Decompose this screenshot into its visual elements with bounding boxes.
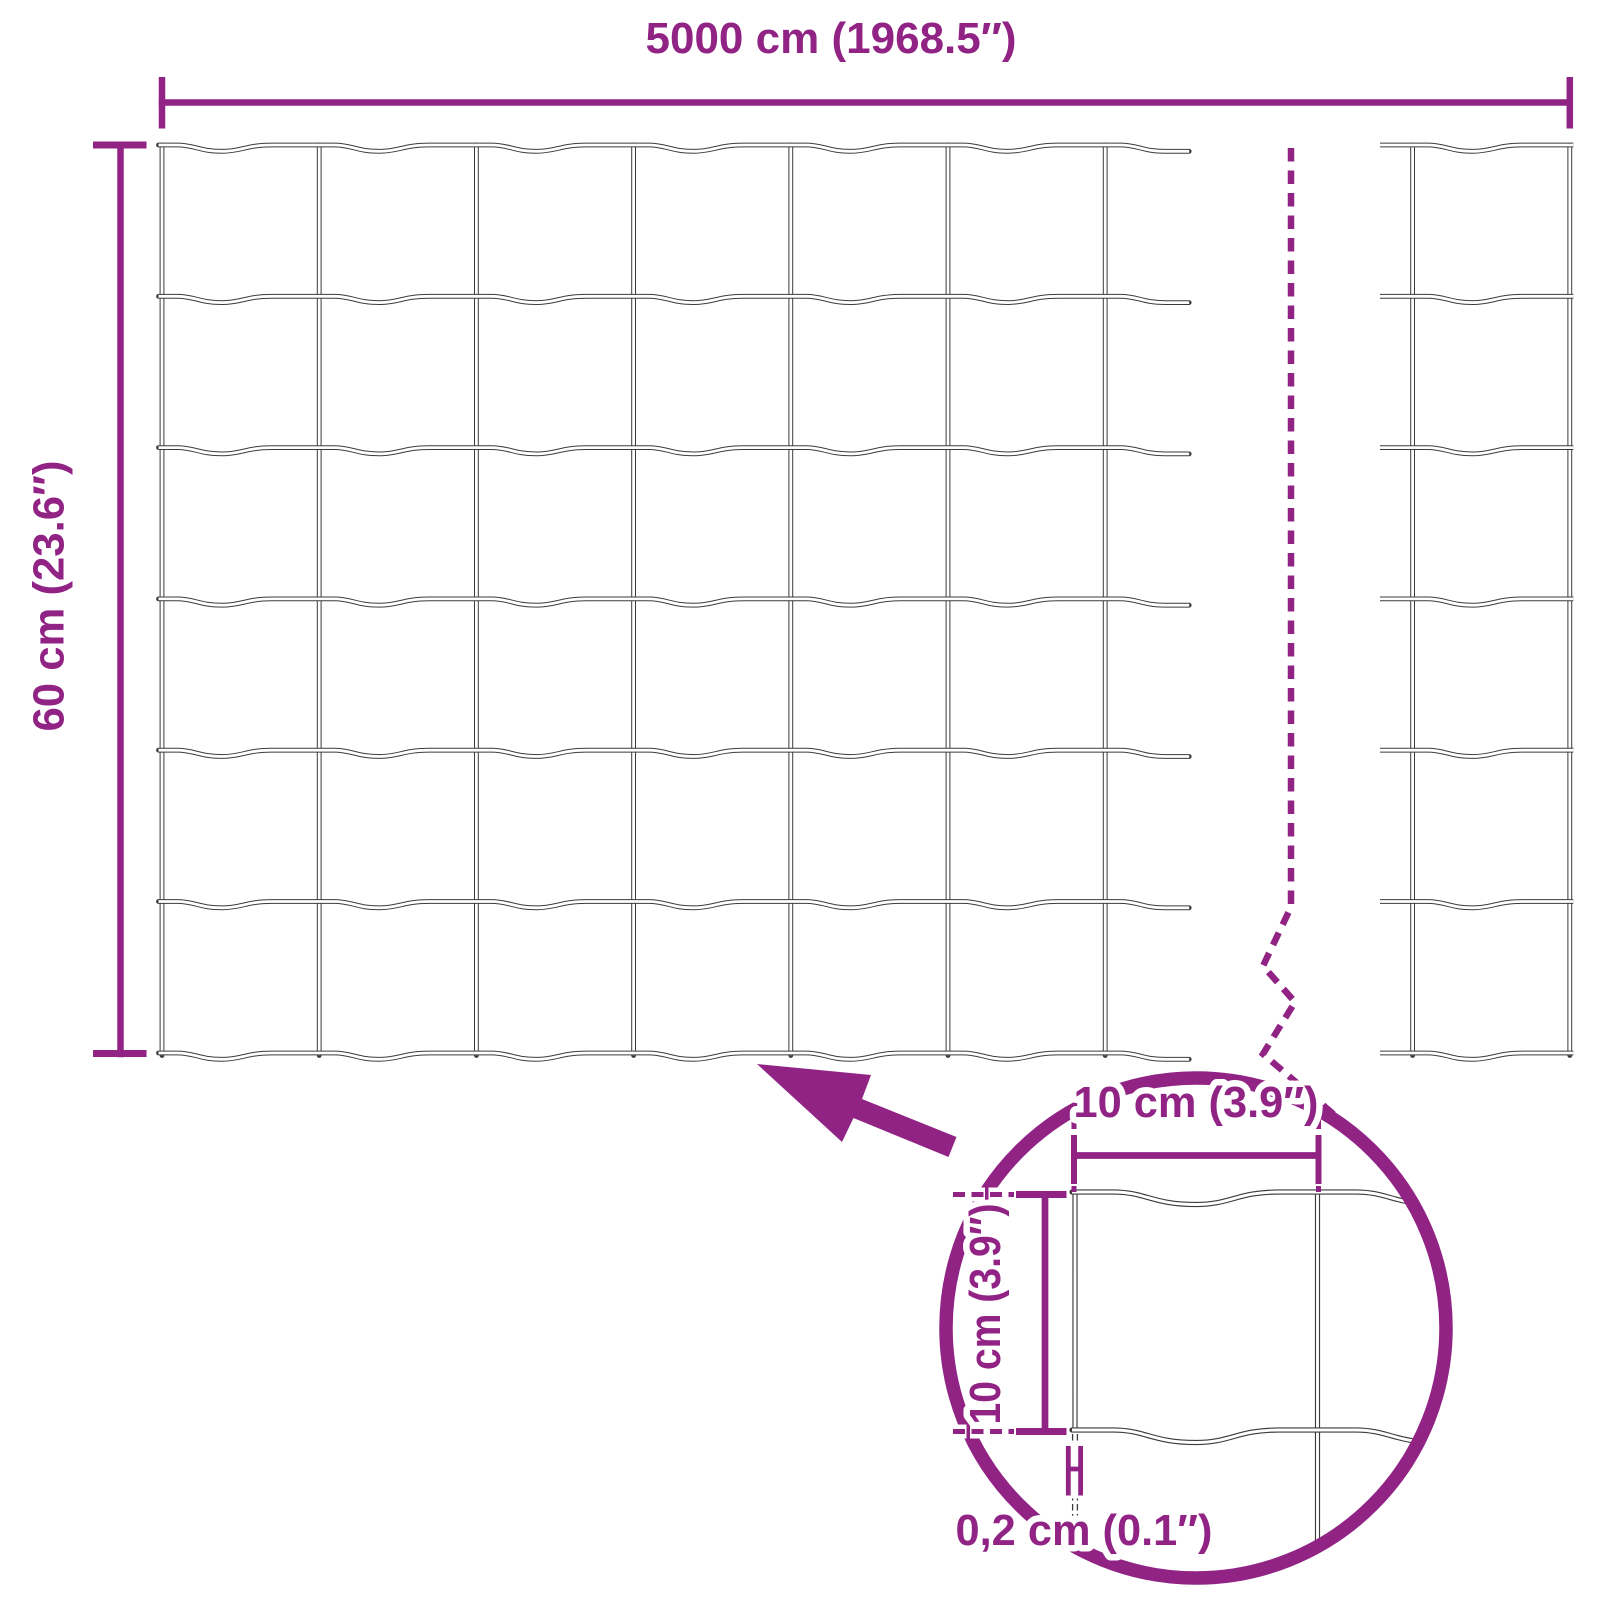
svg-text:10 cm (3.9″): 10 cm (3.9″) (961, 1204, 1010, 1425)
svg-text:60 cm (23.6″): 60 cm (23.6″) (25, 461, 74, 732)
svg-text:5000 cm (1968.5″): 5000 cm (1968.5″) (646, 14, 1017, 63)
svg-text:10 cm (3.9″): 10 cm (3.9″) (1074, 1078, 1319, 1127)
svg-text:0,2 cm (0.1″): 0,2 cm (0.1″) (956, 1506, 1213, 1555)
